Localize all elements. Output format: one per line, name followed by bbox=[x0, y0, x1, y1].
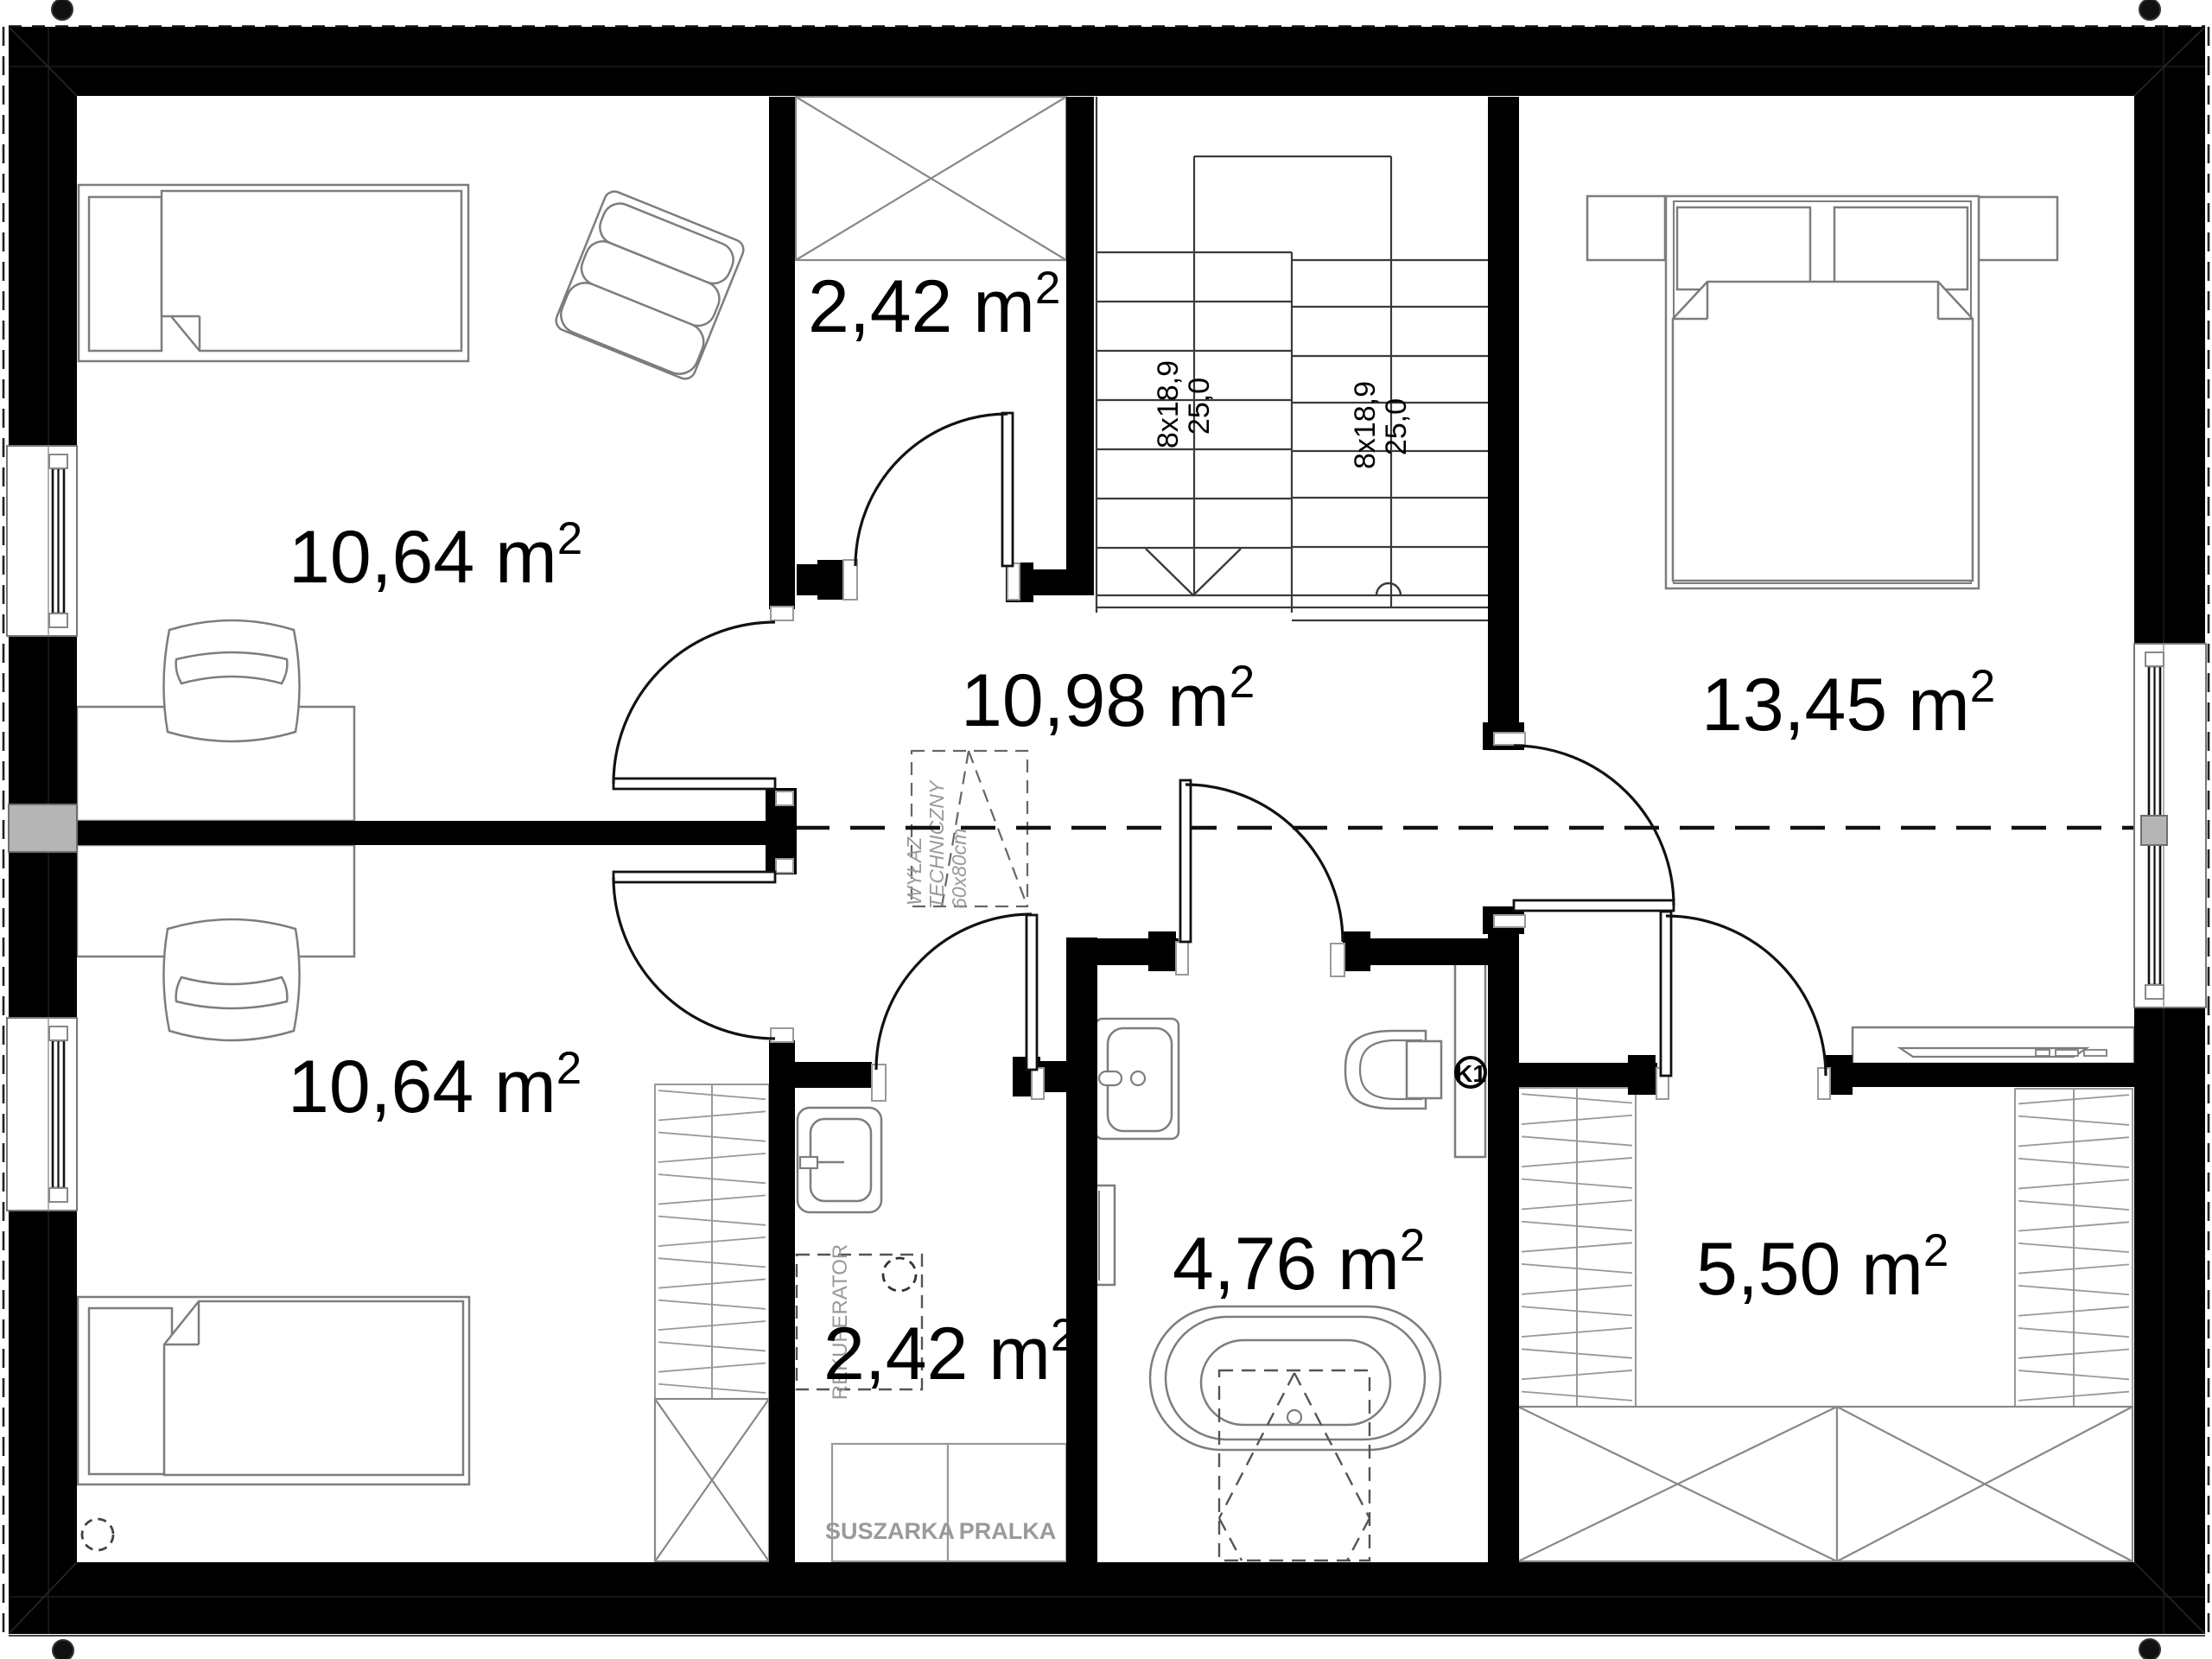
svg-text:8x18,9: 8x18,9 bbox=[1152, 360, 1185, 448]
svg-text:SUSZARKA: SUSZARKA bbox=[825, 1518, 955, 1544]
svg-text:TECHNICZNY: TECHNICZNY bbox=[925, 779, 948, 909]
svg-text:10,64 m2: 10,64 m2 bbox=[289, 513, 582, 599]
svg-text:13,45 m2: 13,45 m2 bbox=[1701, 661, 1995, 747]
svg-text:5,50 m2: 5,50 m2 bbox=[1696, 1225, 1948, 1311]
svg-text:10,98 m2: 10,98 m2 bbox=[961, 657, 1255, 742]
svg-text:8x18,9: 8x18,9 bbox=[1349, 381, 1382, 469]
svg-text:4,76 m2: 4,76 m2 bbox=[1173, 1220, 1425, 1306]
svg-text:60x80cm: 60x80cm bbox=[948, 829, 970, 909]
svg-text:WYŁAZ: WYŁAZ bbox=[903, 836, 925, 906]
svg-text:25,0: 25,0 bbox=[1380, 398, 1413, 455]
svg-text:10,64 m2: 10,64 m2 bbox=[288, 1043, 582, 1128]
svg-text:2,42 m2: 2,42 m2 bbox=[823, 1310, 1076, 1395]
svg-text:2,42 m2: 2,42 m2 bbox=[808, 263, 1060, 348]
svg-text:K1: K1 bbox=[1455, 1060, 1486, 1087]
svg-text:PRALKA: PRALKA bbox=[959, 1518, 1057, 1544]
svg-text:25,0: 25,0 bbox=[1183, 378, 1216, 435]
